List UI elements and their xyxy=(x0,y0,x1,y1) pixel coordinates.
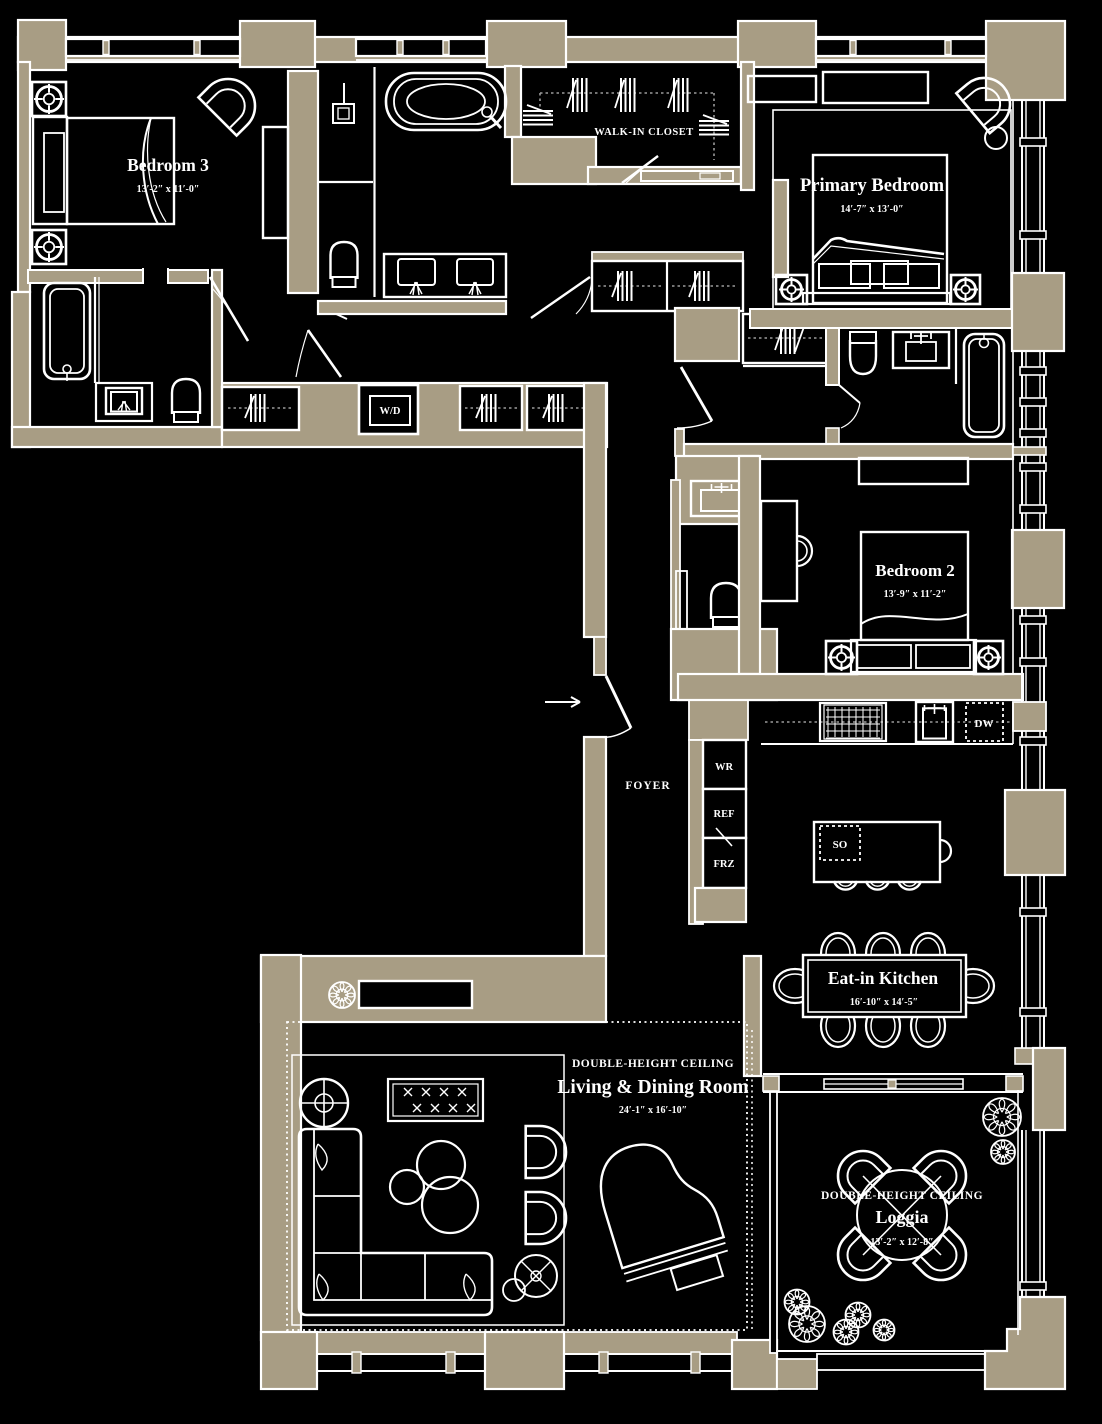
svg-text:DOUBLE-HEIGHT CEILING: DOUBLE-HEIGHT CEILING xyxy=(572,1058,734,1070)
svg-text:Bedroom 2: Bedroom 2 xyxy=(875,561,955,580)
svg-text:DW: DW xyxy=(975,718,994,730)
svg-text:FOYER: FOYER xyxy=(625,780,670,792)
svg-text:13′-9″ x 11′-2″: 13′-9″ x 11′-2″ xyxy=(884,589,947,600)
svg-text:WALK-IN CLOSET: WALK-IN CLOSET xyxy=(594,127,693,138)
svg-text:Living & Dining Room: Living & Dining Room xyxy=(557,1077,748,1098)
svg-text:Eat-in Kitchen: Eat-in Kitchen xyxy=(828,968,939,988)
svg-text:DOUBLE-HEIGHT CEILING: DOUBLE-HEIGHT CEILING xyxy=(821,1190,983,1202)
svg-text:FRZ: FRZ xyxy=(714,859,735,870)
svg-text:14′-7″ x 13′-0″: 14′-7″ x 13′-0″ xyxy=(840,204,903,215)
svg-text:WR: WR xyxy=(715,762,734,773)
svg-text:13′-2″ x 11′-0″: 13′-2″ x 11′-0″ xyxy=(137,184,200,195)
svg-text:W/D: W/D xyxy=(380,406,401,417)
svg-text:REF: REF xyxy=(714,809,735,820)
svg-text:Primary Bedroom: Primary Bedroom xyxy=(800,176,945,196)
svg-text:SO: SO xyxy=(833,839,848,851)
svg-text:13′-2″ x 12′-8″: 13′-2″ x 12′-8″ xyxy=(870,1237,933,1248)
svg-text:Loggia: Loggia xyxy=(875,1207,928,1227)
svg-text:16′-10″ x 14′-5″: 16′-10″ x 14′-5″ xyxy=(850,997,918,1008)
svg-text:Bedroom 3: Bedroom 3 xyxy=(127,155,209,175)
svg-text:24′-1″ x 16′-10″: 24′-1″ x 16′-10″ xyxy=(619,1105,687,1116)
